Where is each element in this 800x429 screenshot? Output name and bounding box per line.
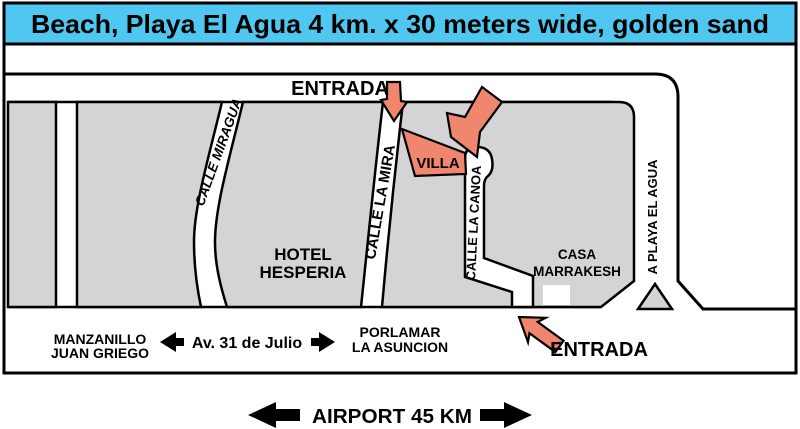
banner-title: Beach, Playa El Agua 4 km. x 30 meters w… — [31, 9, 769, 39]
direction-east-label-line1: PORLAMAR — [360, 324, 441, 340]
airport-west-arrow-icon — [248, 402, 300, 428]
direction-west-label-line2: JUAN GRIEGO — [51, 345, 149, 361]
hotel-hesperia-label-line1: HOTEL — [274, 245, 332, 264]
hotel-hesperia-label-line2: HESPERIA — [260, 263, 347, 282]
street-label-av-31-de-julio: Av. 31 de Julio — [192, 335, 302, 352]
entrance-bottom-label: ENTRADA — [550, 339, 648, 361]
direction-map: Beach, Playa El Agua 4 km. x 30 meters w… — [0, 0, 800, 429]
airport-distance-label: AIRPORT 45 KM — [312, 406, 472, 428]
casa-marrakesh-label-line1: CASA — [558, 247, 597, 262]
entrance-top-label: ENTRADA — [291, 78, 389, 100]
airport-east-arrow-icon — [480, 402, 532, 428]
direction-east-label-line2: LA ASUNCION — [352, 339, 448, 355]
city-block-west-1 — [8, 102, 56, 307]
casa-marrakesh-label-line2: MARRAKESH — [533, 264, 621, 279]
casa-marrakesh-marker — [543, 285, 570, 305]
street-label-a-playa-el-agua: A PLAYA EL AGUA — [645, 159, 660, 275]
villa-label: VILLA — [416, 155, 459, 172]
